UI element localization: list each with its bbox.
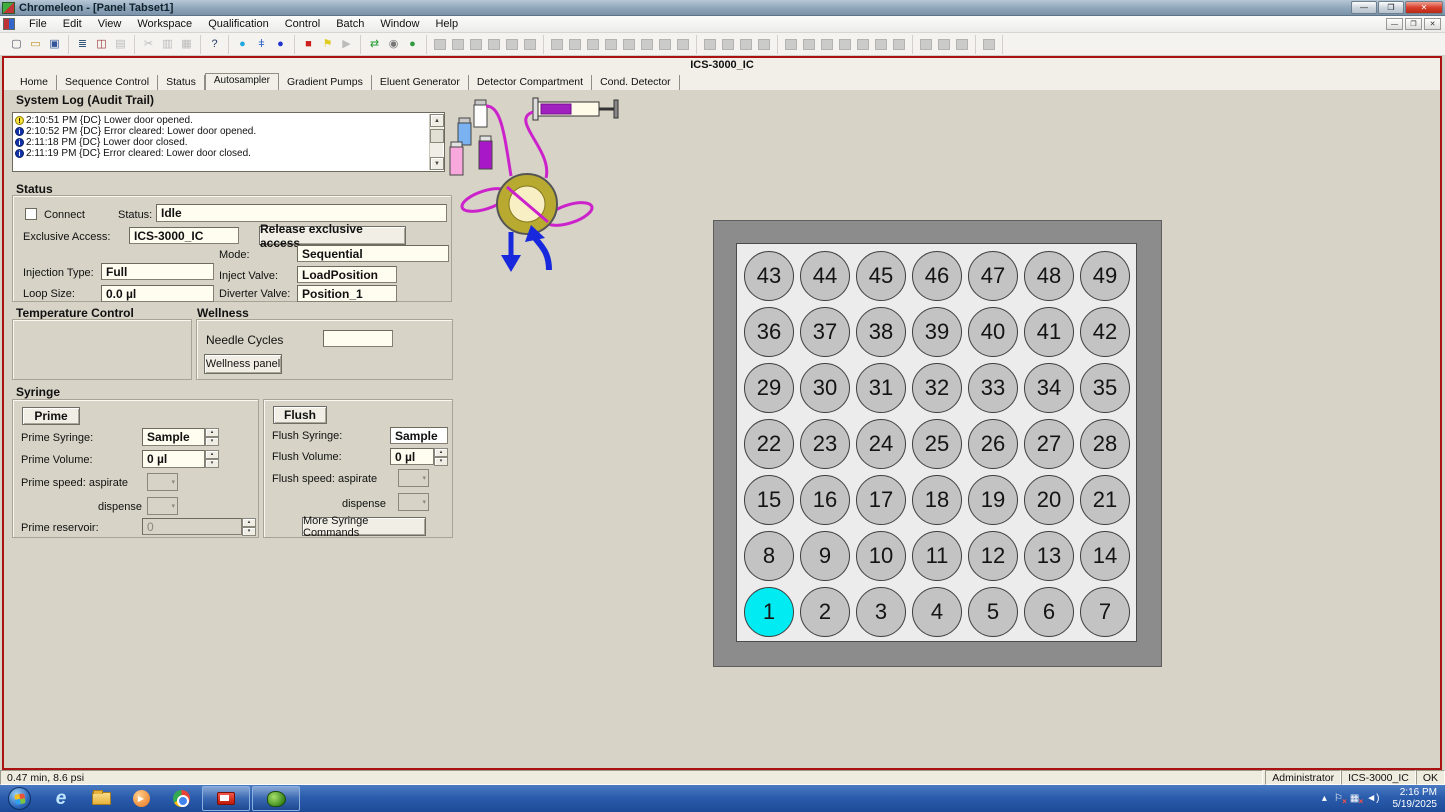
flush-syringe-field[interactable]: Sample bbox=[390, 427, 448, 444]
mode-label: Mode: bbox=[219, 249, 250, 261]
chromeleon-app-icon bbox=[2, 2, 15, 14]
cut-icon: ✂ bbox=[140, 36, 157, 52]
tray-position-31[interactable]: 31 bbox=[856, 363, 906, 413]
wellness-group: Needle Cycles Wellness panel bbox=[196, 319, 453, 380]
plot-grid-2-icon bbox=[605, 39, 617, 50]
toolbar-groups: ▢▭▣≣◫▤✂▥▦?●ǂ●■⚑▶⇄◉● bbox=[3, 35, 1003, 54]
plot-grid-3-icon bbox=[623, 39, 635, 50]
select-1-icon bbox=[857, 39, 869, 50]
injection-type-label: Injection Type: bbox=[23, 267, 94, 279]
vial-down-icon bbox=[722, 39, 734, 50]
spin-down-icon[interactable]: ▾ bbox=[205, 459, 219, 468]
flush-syringe-label: Flush Syringe: bbox=[272, 430, 342, 442]
batch-globe-icon[interactable]: ● bbox=[404, 36, 421, 52]
copy-icon: ▥ bbox=[159, 36, 176, 52]
injection-valve-diagram bbox=[449, 92, 624, 277]
log-entry: i2:11:18 PM {DC} Lower door closed. bbox=[15, 137, 428, 148]
curve-2-icon bbox=[758, 39, 770, 50]
menu-control[interactable]: Control bbox=[277, 17, 328, 31]
child-minimize-button[interactable]: — bbox=[1386, 18, 1403, 30]
new-file-icon[interactable]: ▢ bbox=[8, 36, 25, 52]
play-icon: ▶ bbox=[338, 36, 355, 52]
vial-icons bbox=[450, 100, 492, 175]
menu-window[interactable]: Window bbox=[372, 17, 427, 31]
tray-position-29[interactable]: 29 bbox=[744, 363, 794, 413]
paste-icon: ▦ bbox=[178, 36, 195, 52]
select-2-icon bbox=[875, 39, 887, 50]
tray-position-9[interactable]: 9 bbox=[800, 531, 850, 581]
flush-speed-aspirate-label: Flush speed: aspirate bbox=[272, 473, 377, 485]
status-field: Idle bbox=[156, 204, 447, 222]
toolbar: ▢▭▣≣◫▤✂▥▦?●ǂ●■⚑▶⇄◉● bbox=[0, 33, 1445, 56]
tray-position-24[interactable]: 24 bbox=[856, 419, 906, 469]
tray-position-34[interactable]: 34 bbox=[1024, 363, 1074, 413]
prime-volume-spinner[interactable]: ▴▾ bbox=[205, 450, 219, 468]
loop-size-label: Loop Size: bbox=[23, 288, 75, 300]
plot-grid-4-icon bbox=[641, 39, 653, 50]
tab-sequence-control[interactable]: Sequence Control bbox=[57, 75, 158, 90]
tray-position-37[interactable]: 37 bbox=[800, 307, 850, 357]
tray-position-5[interactable]: 5 bbox=[968, 587, 1018, 637]
minimize-button[interactable]: — bbox=[1351, 1, 1377, 14]
tray-position-42[interactable]: 42 bbox=[1080, 307, 1130, 357]
menu-file[interactable]: File bbox=[21, 17, 55, 31]
plot-grid-1-icon bbox=[587, 39, 599, 50]
log-entry-text: 2:11:18 PM {DC} Lower door closed. bbox=[26, 137, 188, 148]
menu-bar: FileEditViewWorkspaceQualificationContro… bbox=[0, 16, 1445, 33]
connect-label: Connect bbox=[44, 209, 85, 221]
tray-position-43[interactable]: 43 bbox=[744, 251, 794, 301]
child-close-button[interactable]: ✕ bbox=[1424, 18, 1441, 30]
save-icon[interactable]: ▣ bbox=[46, 36, 63, 52]
record-icon[interactable]: ● bbox=[272, 36, 289, 52]
tray-plate: 4344454647484936373839404142293031323334… bbox=[736, 243, 1137, 642]
framed-panel-icon bbox=[506, 39, 518, 50]
duplicate-panel-icon bbox=[524, 39, 536, 50]
table-1-icon bbox=[659, 39, 671, 50]
flush-group: Flush Flush Syringe: Sample Flush Volume… bbox=[263, 399, 453, 538]
spin-up-icon[interactable]: ▴ bbox=[434, 448, 448, 457]
pointer-icon bbox=[785, 39, 797, 50]
file-explorer-icon[interactable] bbox=[81, 785, 121, 812]
child-restore-button[interactable]: ❐ bbox=[1405, 18, 1422, 30]
find-icon[interactable]: ◉ bbox=[385, 36, 402, 52]
diverter-valve-label: Diverter Valve: bbox=[219, 288, 290, 300]
tray-position-44[interactable]: 44 bbox=[800, 251, 850, 301]
title-bar: Chromeleon - [Panel Tabset1] — ❐ ✕ bbox=[0, 0, 1445, 16]
instrument-app-task-button[interactable] bbox=[202, 786, 250, 811]
spin-down-icon: ▾ bbox=[242, 527, 256, 536]
wellness-panel-button[interactable]: Wellness panel bbox=[204, 354, 282, 374]
flush-dispense-label: dispense bbox=[342, 498, 386, 510]
sequence-list-icon[interactable]: ≣ bbox=[74, 36, 91, 52]
prime-syringe-field[interactable]: Sample bbox=[142, 428, 205, 446]
switch-mode-icon[interactable]: ⇄ bbox=[366, 36, 383, 52]
scroll-thumb[interactable] bbox=[430, 129, 444, 143]
tray-position-25[interactable]: 25 bbox=[912, 419, 962, 469]
flush-aspirate-combo bbox=[398, 469, 429, 487]
media-player-icon[interactable]: ▶ bbox=[121, 785, 161, 812]
prime-button[interactable]: Prime bbox=[22, 407, 80, 425]
log-entry-text: 2:10:52 PM {DC} Error cleared: Lower doo… bbox=[26, 126, 256, 137]
needle-cycles-field bbox=[323, 330, 393, 347]
syringe-tool-icon[interactable]: ǂ bbox=[253, 36, 270, 52]
log-scrollbar[interactable]: ▲ ▼ bbox=[429, 114, 443, 170]
info-icon: i bbox=[15, 138, 24, 147]
menu-qualification[interactable]: Qualification bbox=[200, 17, 277, 31]
warning-icon: ! bbox=[15, 116, 24, 125]
system-log-heading: System Log (Audit Trail) bbox=[16, 93, 154, 107]
log-entry: i2:10:52 PM {DC} Error cleared: Lower do… bbox=[15, 126, 428, 137]
pin-icon bbox=[920, 39, 932, 50]
tab-eluent-generator[interactable]: Eluent Generator bbox=[372, 75, 469, 90]
volume-icon[interactable]: ◄) bbox=[1366, 793, 1379, 804]
inject-valve-label: Inject Valve: bbox=[219, 270, 278, 282]
tray-position-35[interactable]: 35 bbox=[1080, 363, 1130, 413]
prime-reservoir-label: Prime reservoir: bbox=[21, 522, 99, 534]
release-exclusive-access-button[interactable]: Release exclusive access bbox=[259, 226, 406, 245]
exclusive-access-field: ICS-3000_IC bbox=[129, 227, 239, 244]
close-button[interactable]: ✕ bbox=[1405, 1, 1443, 14]
prime-volume-label: Prime Volume: bbox=[21, 454, 93, 466]
runtime-pressure-status: 0.47 min, 8.6 psi bbox=[0, 770, 1263, 785]
taskbar: e ▶ ▴ ⚐× ▦× ◄) 2:16 PM 5/19/2025 bbox=[0, 785, 1445, 812]
spin-up-icon[interactable]: ▴ bbox=[205, 450, 219, 459]
tray-position-10[interactable]: 10 bbox=[856, 531, 906, 581]
menu-workspace[interactable]: Workspace bbox=[129, 17, 200, 31]
exit-door-icon bbox=[983, 39, 995, 50]
print-icon: ▤ bbox=[112, 36, 129, 52]
tray-position-38[interactable]: 38 bbox=[856, 307, 906, 357]
prime-aspirate-combo bbox=[147, 473, 178, 491]
tray-position-36[interactable]: 36 bbox=[744, 307, 794, 357]
menu-edit[interactable]: Edit bbox=[55, 17, 90, 31]
system-tray: ▴ ⚐× ▦× ◄) 2:16 PM 5/19/2025 bbox=[1322, 787, 1445, 811]
temperature-control-heading: Temperature Control bbox=[16, 306, 134, 320]
prime-dispense-label: dispense bbox=[98, 501, 142, 513]
wellness-heading: Wellness bbox=[197, 306, 249, 320]
tray-position-30[interactable]: 30 bbox=[800, 363, 850, 413]
pan-h-icon bbox=[803, 39, 815, 50]
zoom-icon bbox=[893, 39, 905, 50]
chromeleon-task-button[interactable] bbox=[252, 786, 300, 811]
browser-grid-icon[interactable]: ◫ bbox=[93, 36, 110, 52]
image-panel-icon bbox=[434, 39, 446, 50]
syringe-heading: Syringe bbox=[16, 385, 60, 399]
log-entry: !2:10:51 PM {DC} Lower door opened. bbox=[15, 115, 428, 126]
prime-volume-field[interactable]: 0 µl bbox=[142, 450, 205, 468]
vial-up-icon bbox=[704, 39, 716, 50]
action-center-flag-icon[interactable]: ⚐× bbox=[1334, 793, 1343, 804]
system-log-box: !2:10:51 PM {DC} Lower door opened.i2:10… bbox=[12, 112, 445, 172]
clock[interactable]: 2:16 PM 5/19/2025 bbox=[1387, 787, 1438, 811]
prime-syringe-label: Prime Syringe: bbox=[21, 432, 93, 444]
nodes-icon bbox=[938, 39, 950, 50]
log-entry-text: 2:11:19 PM {DC} Error cleared: Lower doo… bbox=[26, 148, 251, 159]
tray-position-19[interactable]: 19 bbox=[968, 475, 1018, 525]
chart-panel-icon bbox=[569, 39, 581, 50]
show-hidden-icons-icon[interactable]: ▴ bbox=[1322, 793, 1327, 804]
tray-position-39[interactable]: 39 bbox=[912, 307, 962, 357]
tray-position-32[interactable]: 32 bbox=[912, 363, 962, 413]
tray-position-26[interactable]: 26 bbox=[968, 419, 1018, 469]
restore-button[interactable]: ❐ bbox=[1378, 1, 1404, 14]
tray-position-1[interactable]: 1 bbox=[744, 587, 794, 637]
diverter-valve-field: Position_1 bbox=[297, 285, 397, 302]
tray-position-40[interactable]: 40 bbox=[968, 307, 1018, 357]
tab-cond-detector[interactable]: Cond. Detector bbox=[592, 75, 680, 90]
tray-position-46[interactable]: 46 bbox=[912, 251, 962, 301]
tray-position-4[interactable]: 4 bbox=[912, 587, 962, 637]
tray-position-45[interactable]: 45 bbox=[856, 251, 906, 301]
connect-checkbox[interactable] bbox=[25, 208, 37, 220]
instrument-status: ICS-3000_IC bbox=[1341, 770, 1416, 785]
scroll-down-icon[interactable]: ▼ bbox=[430, 157, 444, 170]
tray-position-15[interactable]: 15 bbox=[744, 475, 794, 525]
open-folder-icon[interactable]: ▭ bbox=[27, 36, 44, 52]
tray-position-6[interactable]: 6 bbox=[1024, 587, 1074, 637]
status-bar: 0.47 min, 8.6 psi Administrator ICS-3000… bbox=[0, 770, 1445, 785]
tray-position-11[interactable]: 11 bbox=[912, 531, 962, 581]
menu-help[interactable]: Help bbox=[427, 17, 466, 31]
mode-field: Sequential bbox=[297, 245, 449, 262]
tray-position-2[interactable]: 2 bbox=[800, 587, 850, 637]
hold-flag-icon[interactable]: ⚑ bbox=[319, 36, 336, 52]
more-syringe-commands-button[interactable]: More Syringe Commands bbox=[302, 517, 426, 536]
info-icon: i bbox=[15, 149, 24, 158]
prime-group: Prime Prime Syringe: Sample ▴▾ Prime Vol… bbox=[12, 399, 259, 538]
windows-flag-icon bbox=[14, 793, 25, 804]
table-2-icon bbox=[677, 39, 689, 50]
tray-position-41[interactable]: 41 bbox=[1024, 307, 1074, 357]
panel-tabs: HomeSequence ControlStatusAutosamplerGra… bbox=[12, 74, 680, 90]
tab-detector-compartment[interactable]: Detector Compartment bbox=[469, 75, 592, 90]
curve-1-icon bbox=[740, 39, 752, 50]
status-heading: Status bbox=[16, 182, 53, 196]
system-log-list: !2:10:51 PM {DC} Lower door opened.i2:10… bbox=[15, 115, 428, 169]
solid-panel-2-icon bbox=[470, 39, 482, 50]
syringe-graphic bbox=[533, 98, 618, 120]
zoom-out-icon bbox=[956, 39, 968, 50]
tray-position-3[interactable]: 3 bbox=[856, 587, 906, 637]
tray-position-23[interactable]: 23 bbox=[800, 419, 850, 469]
status-label: Status: bbox=[118, 209, 152, 221]
tray-position-27[interactable]: 27 bbox=[1024, 419, 1074, 469]
tab-home[interactable]: Home bbox=[12, 75, 57, 90]
tray-position-13[interactable]: 13 bbox=[1024, 531, 1074, 581]
tray-position-48[interactable]: 48 bbox=[1024, 251, 1074, 301]
prime-reservoir-field: 0 bbox=[142, 518, 242, 535]
flush-volume-field[interactable]: 0 µl bbox=[390, 448, 434, 465]
tray-position-14[interactable]: 14 bbox=[1080, 531, 1130, 581]
spin-down-icon[interactable]: ▾ bbox=[434, 457, 448, 466]
tray-position-20[interactable]: 20 bbox=[1024, 475, 1074, 525]
prime-dispense-combo bbox=[147, 497, 178, 515]
stop-icon[interactable]: ■ bbox=[300, 36, 317, 52]
clock-date: 5/19/2025 bbox=[1393, 799, 1438, 811]
chrome-icon[interactable] bbox=[161, 785, 201, 812]
tray-position-17[interactable]: 17 bbox=[856, 475, 906, 525]
tray-position-28[interactable]: 28 bbox=[1080, 419, 1130, 469]
spin-up-icon[interactable]: ▴ bbox=[205, 428, 219, 437]
temperature-control-group bbox=[12, 319, 192, 380]
log-entry-text: 2:10:51 PM {DC} Lower door opened. bbox=[26, 115, 193, 126]
tray-position-22[interactable]: 22 bbox=[744, 419, 794, 469]
tab-status[interactable]: Status bbox=[158, 75, 205, 90]
clock-time: 2:16 PM bbox=[1393, 787, 1438, 799]
new-window-icon bbox=[551, 39, 563, 50]
flush-dispense-combo bbox=[398, 493, 429, 511]
flush-volume-label: Flush Volume: bbox=[272, 451, 342, 463]
tray-position-49[interactable]: 49 bbox=[1080, 251, 1130, 301]
spin-down-icon[interactable]: ▾ bbox=[205, 437, 219, 446]
needle-cycles-label: Needle Cycles bbox=[206, 333, 283, 347]
info-icon: i bbox=[15, 127, 24, 136]
tray-position-21[interactable]: 21 bbox=[1080, 475, 1130, 525]
sample-tray: 4344454647484936373839404142293031323334… bbox=[713, 220, 1162, 667]
injection-type-field: Full bbox=[101, 263, 214, 280]
menu-items: FileEditViewWorkspaceQualificationContro… bbox=[21, 17, 466, 31]
tray-grid: 4344454647484936373839404142293031323334… bbox=[741, 248, 1136, 640]
tab-autosampler[interactable]: Autosampler bbox=[205, 73, 279, 90]
document-icon bbox=[3, 18, 15, 30]
droplet-icon[interactable]: ● bbox=[234, 36, 251, 52]
spin-up-icon: ▴ bbox=[242, 518, 256, 527]
flush-volume-spinner[interactable]: ▴▾ bbox=[434, 448, 448, 465]
prime-reservoir-spinner: ▴▾ bbox=[242, 518, 256, 535]
pan-all-icon bbox=[839, 39, 851, 50]
network-status-icon[interactable]: ▦× bbox=[1350, 793, 1359, 804]
tray-position-7[interactable]: 7 bbox=[1080, 587, 1130, 637]
status-group: Connect Status: Idle Exclusive Access: I… bbox=[12, 195, 452, 302]
flush-button[interactable]: Flush bbox=[273, 406, 327, 424]
menu-batch[interactable]: Batch bbox=[328, 17, 372, 31]
connection-state: OK bbox=[1416, 770, 1445, 785]
solid-panel-3-icon bbox=[488, 39, 500, 50]
prime-speed-aspirate-label: Prime speed: aspirate bbox=[21, 477, 128, 489]
prime-syringe-spinner[interactable]: ▴▾ bbox=[205, 428, 219, 446]
instrument-panel: ICS-3000_IC HomeSequence ControlStatusAu… bbox=[2, 56, 1442, 770]
start-button[interactable] bbox=[8, 787, 31, 810]
tray-position-18[interactable]: 18 bbox=[912, 475, 962, 525]
tray-position-16[interactable]: 16 bbox=[800, 475, 850, 525]
user-status: Administrator bbox=[1265, 770, 1341, 785]
window-title: Chromeleon - [Panel Tabset1] bbox=[19, 2, 173, 14]
solid-panel-1-icon bbox=[452, 39, 464, 50]
scroll-up-icon[interactable]: ▲ bbox=[430, 114, 444, 127]
inject-valve-field: LoadPosition bbox=[297, 266, 397, 283]
tray-position-8[interactable]: 8 bbox=[744, 531, 794, 581]
menu-view[interactable]: View bbox=[90, 17, 130, 31]
tray-position-47[interactable]: 47 bbox=[968, 251, 1018, 301]
tab-gradient-pumps[interactable]: Gradient Pumps bbox=[279, 75, 372, 90]
pan-v-icon bbox=[821, 39, 833, 50]
log-entry: i2:11:19 PM {DC} Error cleared: Lower do… bbox=[15, 148, 428, 159]
loop-size-field: 0.0 µl bbox=[101, 285, 214, 302]
context-help-icon[interactable]: ? bbox=[206, 36, 223, 52]
tray-position-33[interactable]: 33 bbox=[968, 363, 1018, 413]
exclusive-access-label: Exclusive Access: bbox=[23, 231, 110, 243]
tray-position-12[interactable]: 12 bbox=[968, 531, 1018, 581]
internet-explorer-icon[interactable]: e bbox=[41, 785, 81, 812]
panel-title: ICS-3000_IC bbox=[4, 59, 1440, 71]
